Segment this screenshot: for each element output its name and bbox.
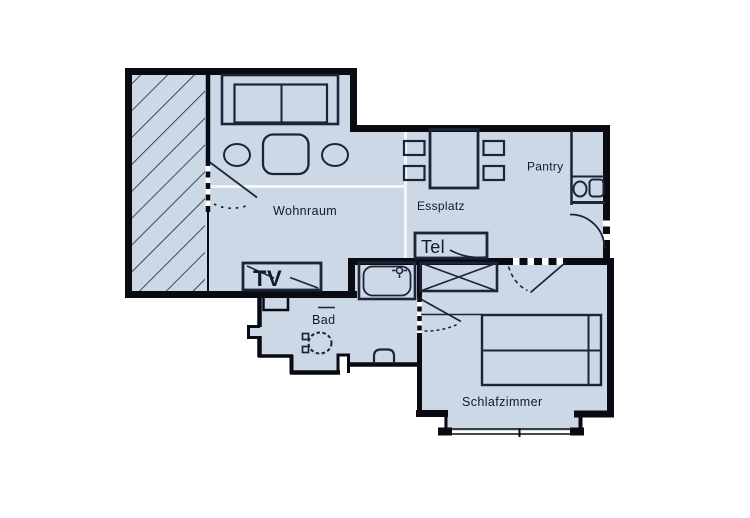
essplatz-floor	[354, 128, 607, 261]
floor-plan-canvas: Wohnraum Essplatz Pantry Tel TV Bad Schl…	[0, 0, 750, 518]
pantry-label: Pantry	[527, 160, 563, 174]
tv-label: TV	[253, 266, 282, 291]
floor-plan: Wohnraum Essplatz Pantry Tel TV Bad Schl…	[0, 0, 750, 518]
bad-label: Bad	[312, 313, 335, 327]
wohnraum-label: Wohnraum	[273, 204, 337, 218]
essplatz-label: Essplatz	[417, 199, 465, 213]
balcony-hatch	[131, 74, 205, 293]
tel-label: Tel	[421, 237, 445, 257]
schlafzimmer-label: Schlafzimmer	[462, 395, 543, 409]
